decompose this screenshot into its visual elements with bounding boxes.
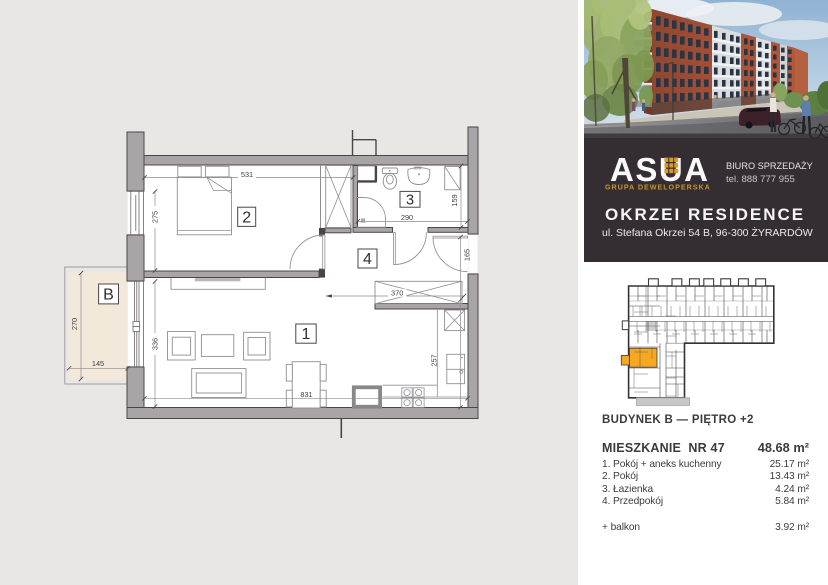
svg-text:370: 370	[391, 288, 403, 297]
svg-text:831: 831	[300, 390, 312, 399]
svg-text:531: 531	[241, 170, 253, 179]
svg-text:GRUPA DEWELOPERSKA: GRUPA DEWELOPERSKA	[605, 183, 711, 192]
svg-text:1: 1	[302, 326, 311, 343]
svg-text:257: 257	[430, 354, 439, 366]
svg-text:B: B	[103, 287, 114, 304]
svg-text:3: 3	[406, 192, 414, 208]
svg-text:336: 336	[150, 338, 159, 350]
svg-text:4: 4	[363, 251, 372, 268]
svg-text:2: 2	[242, 209, 251, 226]
svg-text:290: 290	[401, 213, 413, 222]
svg-text:159: 159	[450, 194, 459, 206]
svg-text:165: 165	[463, 249, 472, 261]
svg-text:275: 275	[150, 211, 159, 223]
svg-text:145: 145	[92, 359, 104, 368]
svg-text:270: 270	[70, 318, 79, 330]
